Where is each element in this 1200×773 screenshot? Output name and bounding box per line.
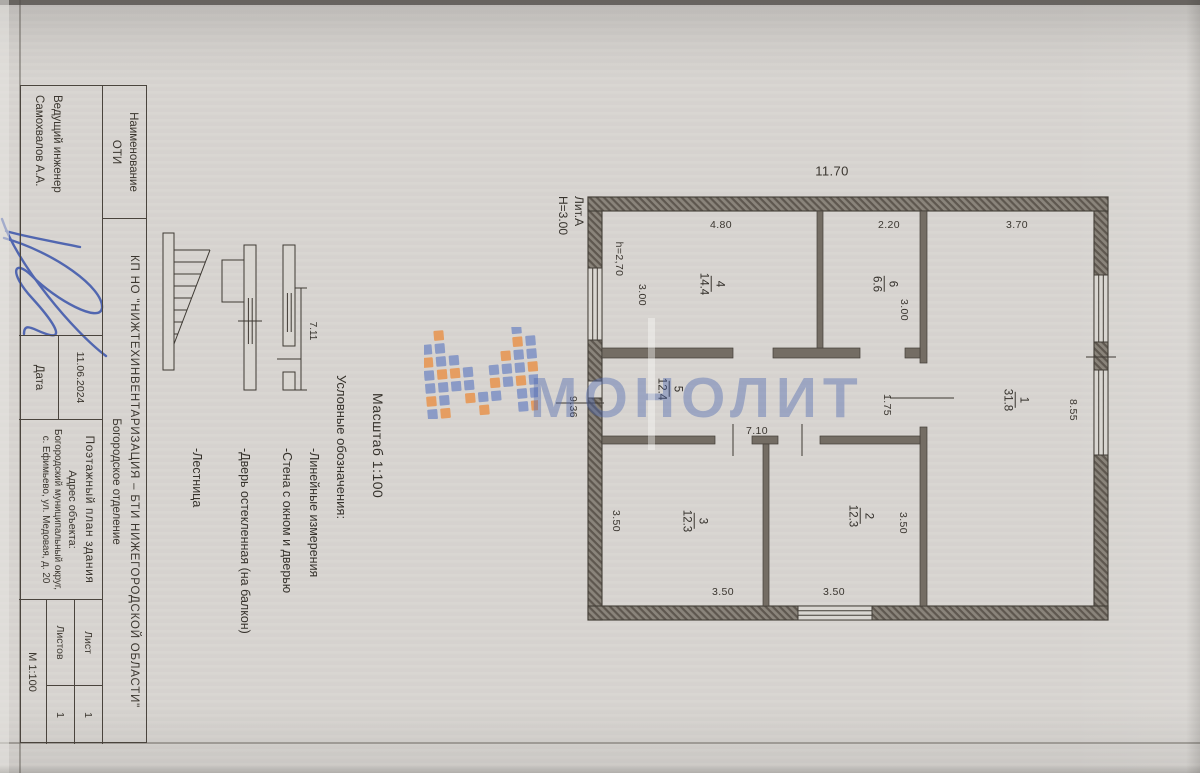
- legend-item-label: -Лестница: [190, 448, 204, 507]
- sheet-row: Лист 1: [74, 600, 102, 744]
- date-cell: 11.06.2024 Дата: [19, 336, 102, 420]
- monolit-watermark-text: МОНОЛИТ: [530, 370, 864, 427]
- sheets-row: Листов 1: [46, 600, 74, 744]
- sheets-label: Листов: [47, 600, 74, 686]
- building-litera: Лит.А Н=3.00: [555, 196, 587, 235]
- room-area: 12.3: [845, 505, 858, 527]
- dimension-label: 8.55: [1067, 399, 1079, 421]
- document-description-cell: Поэтажный план здания Адрес объекта: Бог…: [19, 420, 102, 600]
- legend-symbols: [163, 233, 307, 390]
- title-block: Наименование ОТИ КП НО "НИЖТЕХИНВЕНТАРИЗ…: [20, 85, 147, 743]
- room-label: 3 12.3: [679, 510, 708, 532]
- organization-name: КП НО "НИЖТЕХИНВЕНТАРИЗАЦИЯ – БТИ НИЖЕГО…: [125, 255, 142, 708]
- room-area: 12.3: [679, 510, 692, 532]
- legend-item-label: -Стена с окном и дверью: [280, 448, 294, 593]
- dimension-label: 3.00: [636, 284, 648, 306]
- document-title: Поэтажный план здания: [83, 436, 97, 584]
- address-line2: с. Ефимьево, ул. Медовая, д. 20: [40, 436, 51, 584]
- dimension-label: 3.50: [610, 510, 622, 532]
- scan-shade-top: [0, 0, 1200, 80]
- scan-edge-left: [0, 0, 9, 773]
- building-height-label: Н=3.00: [555, 196, 571, 235]
- scan-streak: [648, 318, 655, 450]
- litera-label: Лит.А: [571, 196, 587, 235]
- dimension-label: 1.75: [881, 394, 893, 416]
- room-area: 31.8: [1000, 389, 1013, 411]
- oti-name-line2: ОТИ: [108, 140, 125, 164]
- monolit-logo-icon: [424, 327, 538, 419]
- room-label: 4 14.4: [696, 273, 725, 295]
- room-label: 2 12.3: [845, 505, 874, 527]
- dimension-label: 3.50: [823, 586, 845, 598]
- room-area: 14.4: [696, 273, 709, 295]
- legend-sample-dimension: 7.11: [307, 322, 318, 341]
- room-number: 6: [884, 276, 899, 292]
- dimension-label: h=2,70: [613, 242, 625, 277]
- dimension-label: 3.70: [1006, 219, 1028, 231]
- engineer-role: Ведущий инженер: [47, 95, 65, 335]
- address-line1: Богородский муниципальный округ,: [52, 429, 63, 590]
- scanned-floor-plan-photo: 1 31.8 6 6.6 2 12.3 4 14.4 3 12.3 5 12.4: [0, 0, 1200, 773]
- legend-heading: Условные обозначения:: [334, 375, 349, 519]
- scale-value: М 1:100: [19, 600, 46, 744]
- date-label: Дата: [20, 336, 58, 419]
- scan-shade-bottom: [0, 765, 1200, 773]
- room-label: 6 6.6: [869, 276, 898, 292]
- address-label: Адрес объекта:: [66, 470, 78, 549]
- legend-item-label: -Дверь остекленная (на балкон): [238, 448, 252, 634]
- sheets-value: 1: [47, 686, 74, 744]
- dimension-label: 3.50: [712, 586, 734, 598]
- room-label: 1 31.8: [1000, 389, 1029, 411]
- date-value: 11.06.2024: [58, 336, 102, 419]
- oti-name-cell: Наименование ОТИ: [102, 86, 146, 219]
- scan-shade-right: [1186, 0, 1200, 773]
- dimension-label: 4.80: [710, 219, 732, 231]
- organization-cell: КП НО "НИЖТЕХИНВЕНТАРИЗАЦИЯ – БТИ НИЖЕГО…: [102, 219, 146, 744]
- scale-label: Масштаб 1:100: [370, 393, 386, 498]
- room-number: 3: [694, 513, 709, 529]
- organization-branch: Богородское отделение: [107, 418, 124, 544]
- room-number: 4: [711, 276, 726, 292]
- engineer-name: Самохвалов А.А.: [29, 95, 47, 335]
- oti-name-line1: Наименование: [125, 112, 142, 192]
- sheet-info-cell: Лист 1 Листов 1 М 1:100: [19, 600, 102, 744]
- dimension-label: 3.50: [897, 512, 909, 534]
- room-number: 2: [860, 508, 875, 524]
- dimension-label: 2.20: [878, 219, 900, 231]
- legend-item-label: -Линейные измерения: [307, 448, 321, 577]
- room-area: 6.6: [869, 276, 882, 292]
- room-number: 1: [1015, 392, 1030, 408]
- dimension-label: 11.70: [815, 164, 849, 179]
- sheet-value: 1: [75, 686, 102, 744]
- sheet-label: Лист: [75, 600, 102, 686]
- dimension-label: 3.00: [898, 299, 910, 321]
- engineer-cell: Ведущий инженер Самохвалов А.А.: [19, 86, 102, 336]
